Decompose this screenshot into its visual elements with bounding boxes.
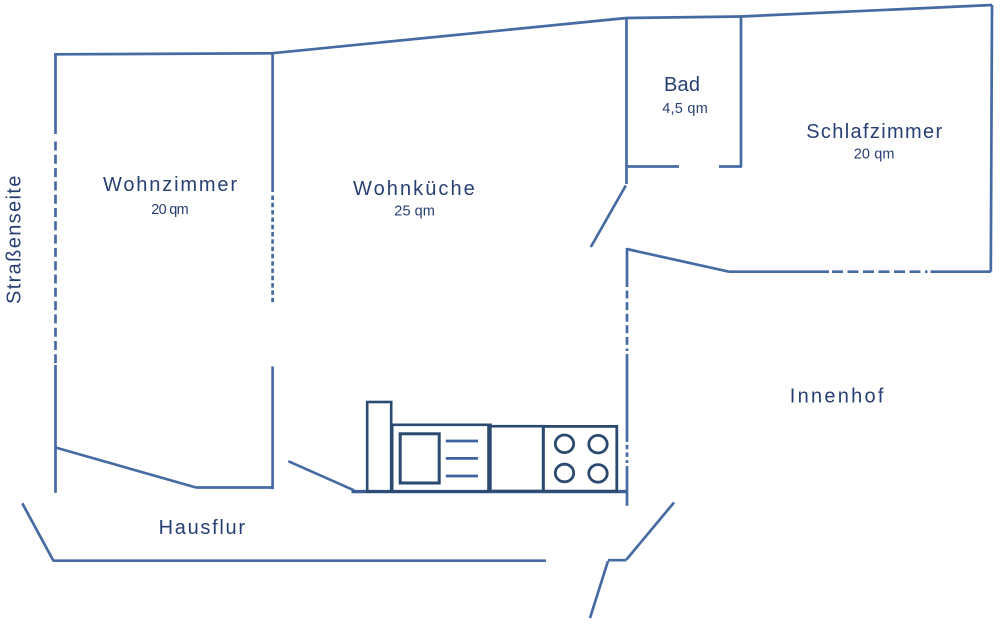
svg-text:25 qm: 25 qm: [394, 204, 435, 220]
svg-text:Bad: Bad: [664, 74, 700, 96]
svg-text:Schlafzimmer: Schlafzimmer: [806, 121, 942, 143]
svg-text:Wohnzimmer: Wohnzimmer: [103, 174, 237, 196]
svg-text:Straßenseite: Straßenseite: [4, 176, 26, 304]
svg-text:4,5 qm: 4,5 qm: [662, 101, 708, 117]
svg-text:Wohnküche: Wohnküche: [353, 178, 475, 200]
svg-text:Innenhof: Innenhof: [790, 385, 884, 407]
svg-text:Hausflur: Hausflur: [159, 517, 246, 539]
svg-text:20 qm: 20 qm: [151, 202, 189, 218]
svg-text:20 qm: 20 qm: [854, 147, 895, 163]
